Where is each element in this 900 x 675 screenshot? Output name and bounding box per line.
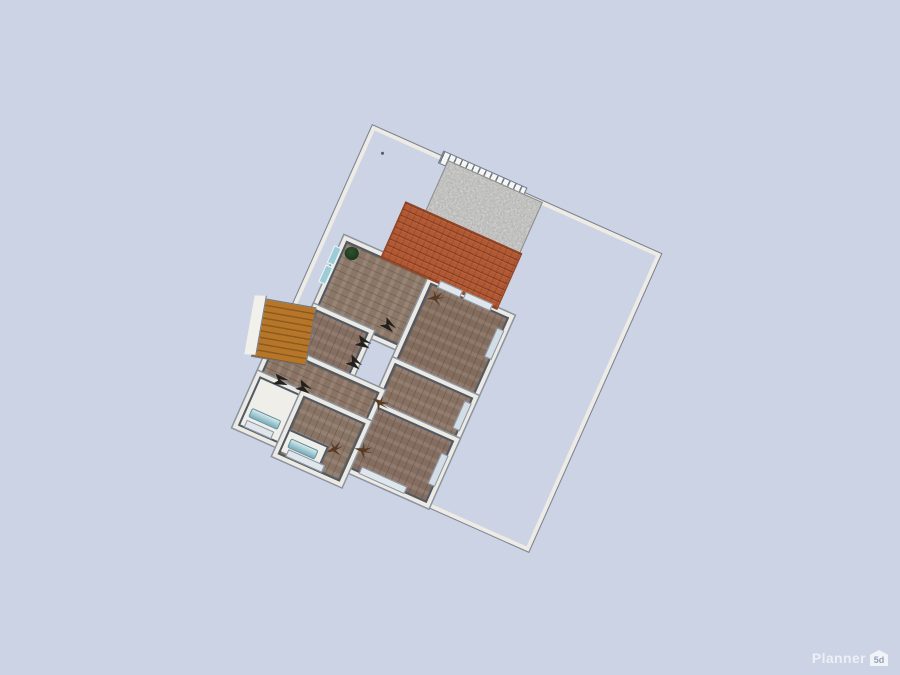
staircase bbox=[251, 298, 317, 367]
stair-railing bbox=[244, 295, 267, 355]
watermark-brand-text: Planner bbox=[812, 650, 866, 666]
planner5d-house-badge-icon: 5d bbox=[870, 650, 888, 666]
floor-plan-canvas[interactable]: Planner 5d bbox=[0, 0, 900, 675]
planner5d-watermark: Planner 5d bbox=[812, 650, 888, 666]
